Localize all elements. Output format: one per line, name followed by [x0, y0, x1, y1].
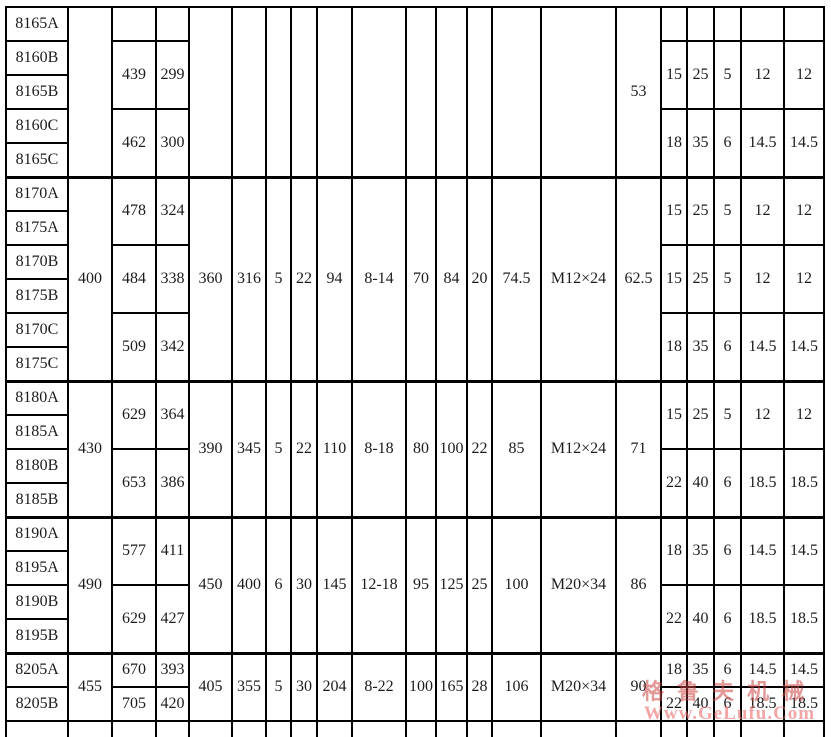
value-cell: 18 [661, 653, 687, 687]
model-cell: 8170C [6, 313, 68, 347]
model-cell [6, 721, 68, 737]
value-cell: 509 [112, 313, 156, 381]
value-cell [156, 7, 189, 41]
model-cell: 8205A [6, 653, 68, 687]
value-cell: 299 [156, 41, 189, 109]
value-cell: 462 [112, 109, 156, 177]
value-cell [541, 7, 616, 177]
model-cell: 8175C [6, 347, 68, 381]
value-cell: 86 [616, 517, 661, 653]
value-cell: 450 [189, 517, 232, 653]
value-cell [436, 721, 467, 737]
model-cell: 8160B [6, 41, 68, 75]
model-cell: 8180A [6, 381, 68, 415]
value-cell [541, 721, 616, 737]
value-cell [317, 7, 352, 177]
value-cell: 35 [687, 517, 714, 585]
value-cell [616, 721, 661, 737]
value-cell: 420 [156, 687, 189, 721]
value-cell: 430 [68, 381, 112, 517]
value-cell: 6 [714, 313, 741, 381]
value-cell: 22 [291, 381, 317, 517]
value-cell: 14.5 [741, 109, 784, 177]
value-cell [232, 721, 266, 737]
value-cell [189, 721, 232, 737]
value-cell: 106 [492, 653, 541, 721]
value-cell: 18.5 [741, 687, 784, 721]
value-cell [68, 721, 112, 737]
value-cell: 204 [317, 653, 352, 721]
value-cell [291, 721, 317, 737]
value-cell: 18.5 [784, 449, 824, 517]
value-cell: 364 [156, 381, 189, 449]
value-cell: 40 [687, 585, 714, 653]
value-cell: 5 [266, 653, 291, 721]
value-cell: 8-18 [352, 381, 406, 517]
spec-sheet-page: { "colors": { "grid_line": "#000000", "t… [0, 0, 831, 737]
value-cell: 28 [467, 653, 492, 721]
value-cell: 653 [112, 449, 156, 517]
model-cell: 8160C [6, 109, 68, 143]
value-cell: 360 [189, 177, 232, 381]
value-cell: 355 [232, 653, 266, 721]
value-cell: 25 [467, 517, 492, 653]
value-cell: 145 [317, 517, 352, 653]
value-cell: 22 [291, 177, 317, 381]
value-cell: 8-22 [352, 653, 406, 721]
value-cell [232, 7, 266, 177]
value-cell [436, 7, 467, 177]
value-cell: 125 [436, 517, 467, 653]
value-cell: 8-14 [352, 177, 406, 381]
value-cell: 25 [687, 381, 714, 449]
value-cell [784, 7, 824, 41]
model-cell: 8205B [6, 687, 68, 721]
value-cell: 100 [492, 517, 541, 653]
value-cell [492, 7, 541, 177]
model-cell: 8195B [6, 619, 68, 653]
value-cell: 18.5 [741, 449, 784, 517]
value-cell: 5 [266, 177, 291, 381]
value-cell: 94 [317, 177, 352, 381]
value-cell [661, 721, 687, 737]
value-cell: 14.5 [784, 517, 824, 585]
value-cell: 6 [714, 109, 741, 177]
value-cell: 5 [714, 177, 741, 245]
value-cell: 165 [436, 653, 467, 721]
value-cell: 490 [68, 517, 112, 653]
value-cell [741, 721, 784, 737]
row-8205A: 8205A4556703934053555302048-221001652810… [6, 653, 824, 687]
value-cell [68, 7, 112, 177]
value-cell: 25 [687, 177, 714, 245]
row-8180A: 8180A4306293643903455221108-18801002285M… [6, 381, 824, 415]
value-cell: 300 [156, 109, 189, 177]
value-cell: 316 [232, 177, 266, 381]
value-cell: 35 [687, 653, 714, 687]
value-cell: 80 [406, 381, 436, 517]
value-cell: 100 [406, 653, 436, 721]
value-cell [352, 721, 406, 737]
value-cell: 100 [436, 381, 467, 517]
value-cell: 22 [661, 585, 687, 653]
value-cell: 6 [266, 517, 291, 653]
value-cell: 30 [291, 653, 317, 721]
value-cell: 405 [189, 653, 232, 721]
value-cell: 393 [156, 653, 189, 687]
model-cell: 8175B [6, 279, 68, 313]
value-cell: 386 [156, 449, 189, 517]
model-cell: 8185B [6, 483, 68, 517]
model-cell: 8165B [6, 75, 68, 109]
model-cell: 8195A [6, 551, 68, 585]
value-cell: 84 [436, 177, 467, 381]
value-cell: 25 [687, 245, 714, 313]
spec-table: 8165A538160B4392991525512128165B8160C462… [5, 6, 825, 737]
value-cell [714, 7, 741, 41]
value-cell: 14.5 [784, 109, 824, 177]
value-cell: 35 [687, 313, 714, 381]
value-cell [291, 7, 317, 177]
value-cell [467, 7, 492, 177]
value-cell: 12 [741, 41, 784, 109]
value-cell: 12 [784, 41, 824, 109]
value-cell: 71 [616, 381, 661, 517]
value-cell: 14.5 [784, 653, 824, 687]
value-cell: 577 [112, 517, 156, 585]
value-cell: 12 [784, 245, 824, 313]
value-cell: 5 [714, 245, 741, 313]
value-cell [492, 721, 541, 737]
value-cell: 15 [661, 245, 687, 313]
value-cell: 20 [467, 177, 492, 381]
model-cell: 8170B [6, 245, 68, 279]
value-cell: 40 [687, 449, 714, 517]
value-cell: 455 [68, 653, 112, 721]
value-cell: 95 [406, 517, 436, 653]
row-partial-cut [6, 721, 824, 737]
value-cell: 6 [714, 585, 741, 653]
value-cell [467, 721, 492, 737]
value-cell: 427 [156, 585, 189, 653]
value-cell [714, 721, 741, 737]
value-cell [687, 7, 714, 41]
value-cell: 18 [661, 313, 687, 381]
value-cell: 12-18 [352, 517, 406, 653]
row-8165A: 8165A53 [6, 7, 824, 41]
value-cell: 670 [112, 653, 156, 687]
model-cell: 8170A [6, 177, 68, 211]
model-cell: 8165A [6, 7, 68, 41]
value-cell: 14.5 [741, 313, 784, 381]
value-cell: M12×24 [541, 381, 616, 517]
value-cell: 345 [232, 381, 266, 517]
value-cell: 342 [156, 313, 189, 381]
value-cell: 390 [189, 381, 232, 517]
value-cell: 12 [741, 177, 784, 245]
value-cell: 705 [112, 687, 156, 721]
model-cell: 8175A [6, 211, 68, 245]
value-cell [406, 721, 436, 737]
value-cell: 22 [661, 449, 687, 517]
value-cell: 90 [616, 653, 661, 721]
value-cell: 25 [687, 41, 714, 109]
value-cell: 6 [714, 653, 741, 687]
row-8190A: 8190A49057741145040063014512-18951252510… [6, 517, 824, 551]
value-cell: 12 [784, 381, 824, 449]
value-cell: 15 [661, 177, 687, 245]
value-cell: 14.5 [784, 313, 824, 381]
value-cell: 22 [467, 381, 492, 517]
model-cell: 8180B [6, 449, 68, 483]
value-cell: 62.5 [616, 177, 661, 381]
value-cell: 478 [112, 177, 156, 245]
value-cell: 338 [156, 245, 189, 313]
value-cell: 18 [661, 109, 687, 177]
value-cell: 629 [112, 585, 156, 653]
value-cell [112, 721, 156, 737]
model-cell: 8185A [6, 415, 68, 449]
value-cell: 70 [406, 177, 436, 381]
value-cell [189, 7, 232, 177]
value-cell: 6 [714, 687, 741, 721]
value-cell [352, 7, 406, 177]
row-8170A: 8170A400478324360316522948-1470842074.5M… [6, 177, 824, 211]
value-cell [317, 721, 352, 737]
value-cell: 12 [741, 381, 784, 449]
value-cell: 411 [156, 517, 189, 585]
value-cell [112, 7, 156, 41]
value-cell [784, 721, 824, 737]
value-cell [156, 721, 189, 737]
value-cell [266, 7, 291, 177]
value-cell: 22 [661, 687, 687, 721]
model-cell: 8190B [6, 585, 68, 619]
table-sheet: 8165A538160B4392991525512128165B8160C462… [5, 6, 827, 737]
value-cell: 53 [616, 7, 661, 177]
value-cell: 18.5 [741, 585, 784, 653]
value-cell: 74.5 [492, 177, 541, 381]
value-cell: 6 [714, 449, 741, 517]
value-cell: 35 [687, 109, 714, 177]
value-cell: 14.5 [741, 517, 784, 585]
value-cell [741, 7, 784, 41]
value-cell: 12 [741, 245, 784, 313]
value-cell: M20×34 [541, 517, 616, 653]
value-cell [266, 721, 291, 737]
value-cell: 40 [687, 687, 714, 721]
value-cell [687, 721, 714, 737]
value-cell: 629 [112, 381, 156, 449]
value-cell: 6 [714, 517, 741, 585]
value-cell: 324 [156, 177, 189, 245]
value-cell [406, 7, 436, 177]
value-cell: 12 [784, 177, 824, 245]
value-cell: 14.5 [741, 653, 784, 687]
value-cell [661, 7, 687, 41]
value-cell: 484 [112, 245, 156, 313]
value-cell: M20×34 [541, 653, 616, 721]
value-cell: 439 [112, 41, 156, 109]
value-cell: M12×24 [541, 177, 616, 381]
value-cell: 18.5 [784, 687, 824, 721]
value-cell: 400 [232, 517, 266, 653]
model-cell: 8190A [6, 517, 68, 551]
value-cell: 400 [68, 177, 112, 381]
value-cell: 18.5 [784, 585, 824, 653]
value-cell: 85 [492, 381, 541, 517]
value-cell: 15 [661, 381, 687, 449]
value-cell: 5 [714, 41, 741, 109]
value-cell: 110 [317, 381, 352, 517]
value-cell: 15 [661, 41, 687, 109]
value-cell: 30 [291, 517, 317, 653]
value-cell: 18 [661, 517, 687, 585]
value-cell: 5 [714, 381, 741, 449]
model-cell: 8165C [6, 143, 68, 177]
value-cell: 5 [266, 381, 291, 517]
